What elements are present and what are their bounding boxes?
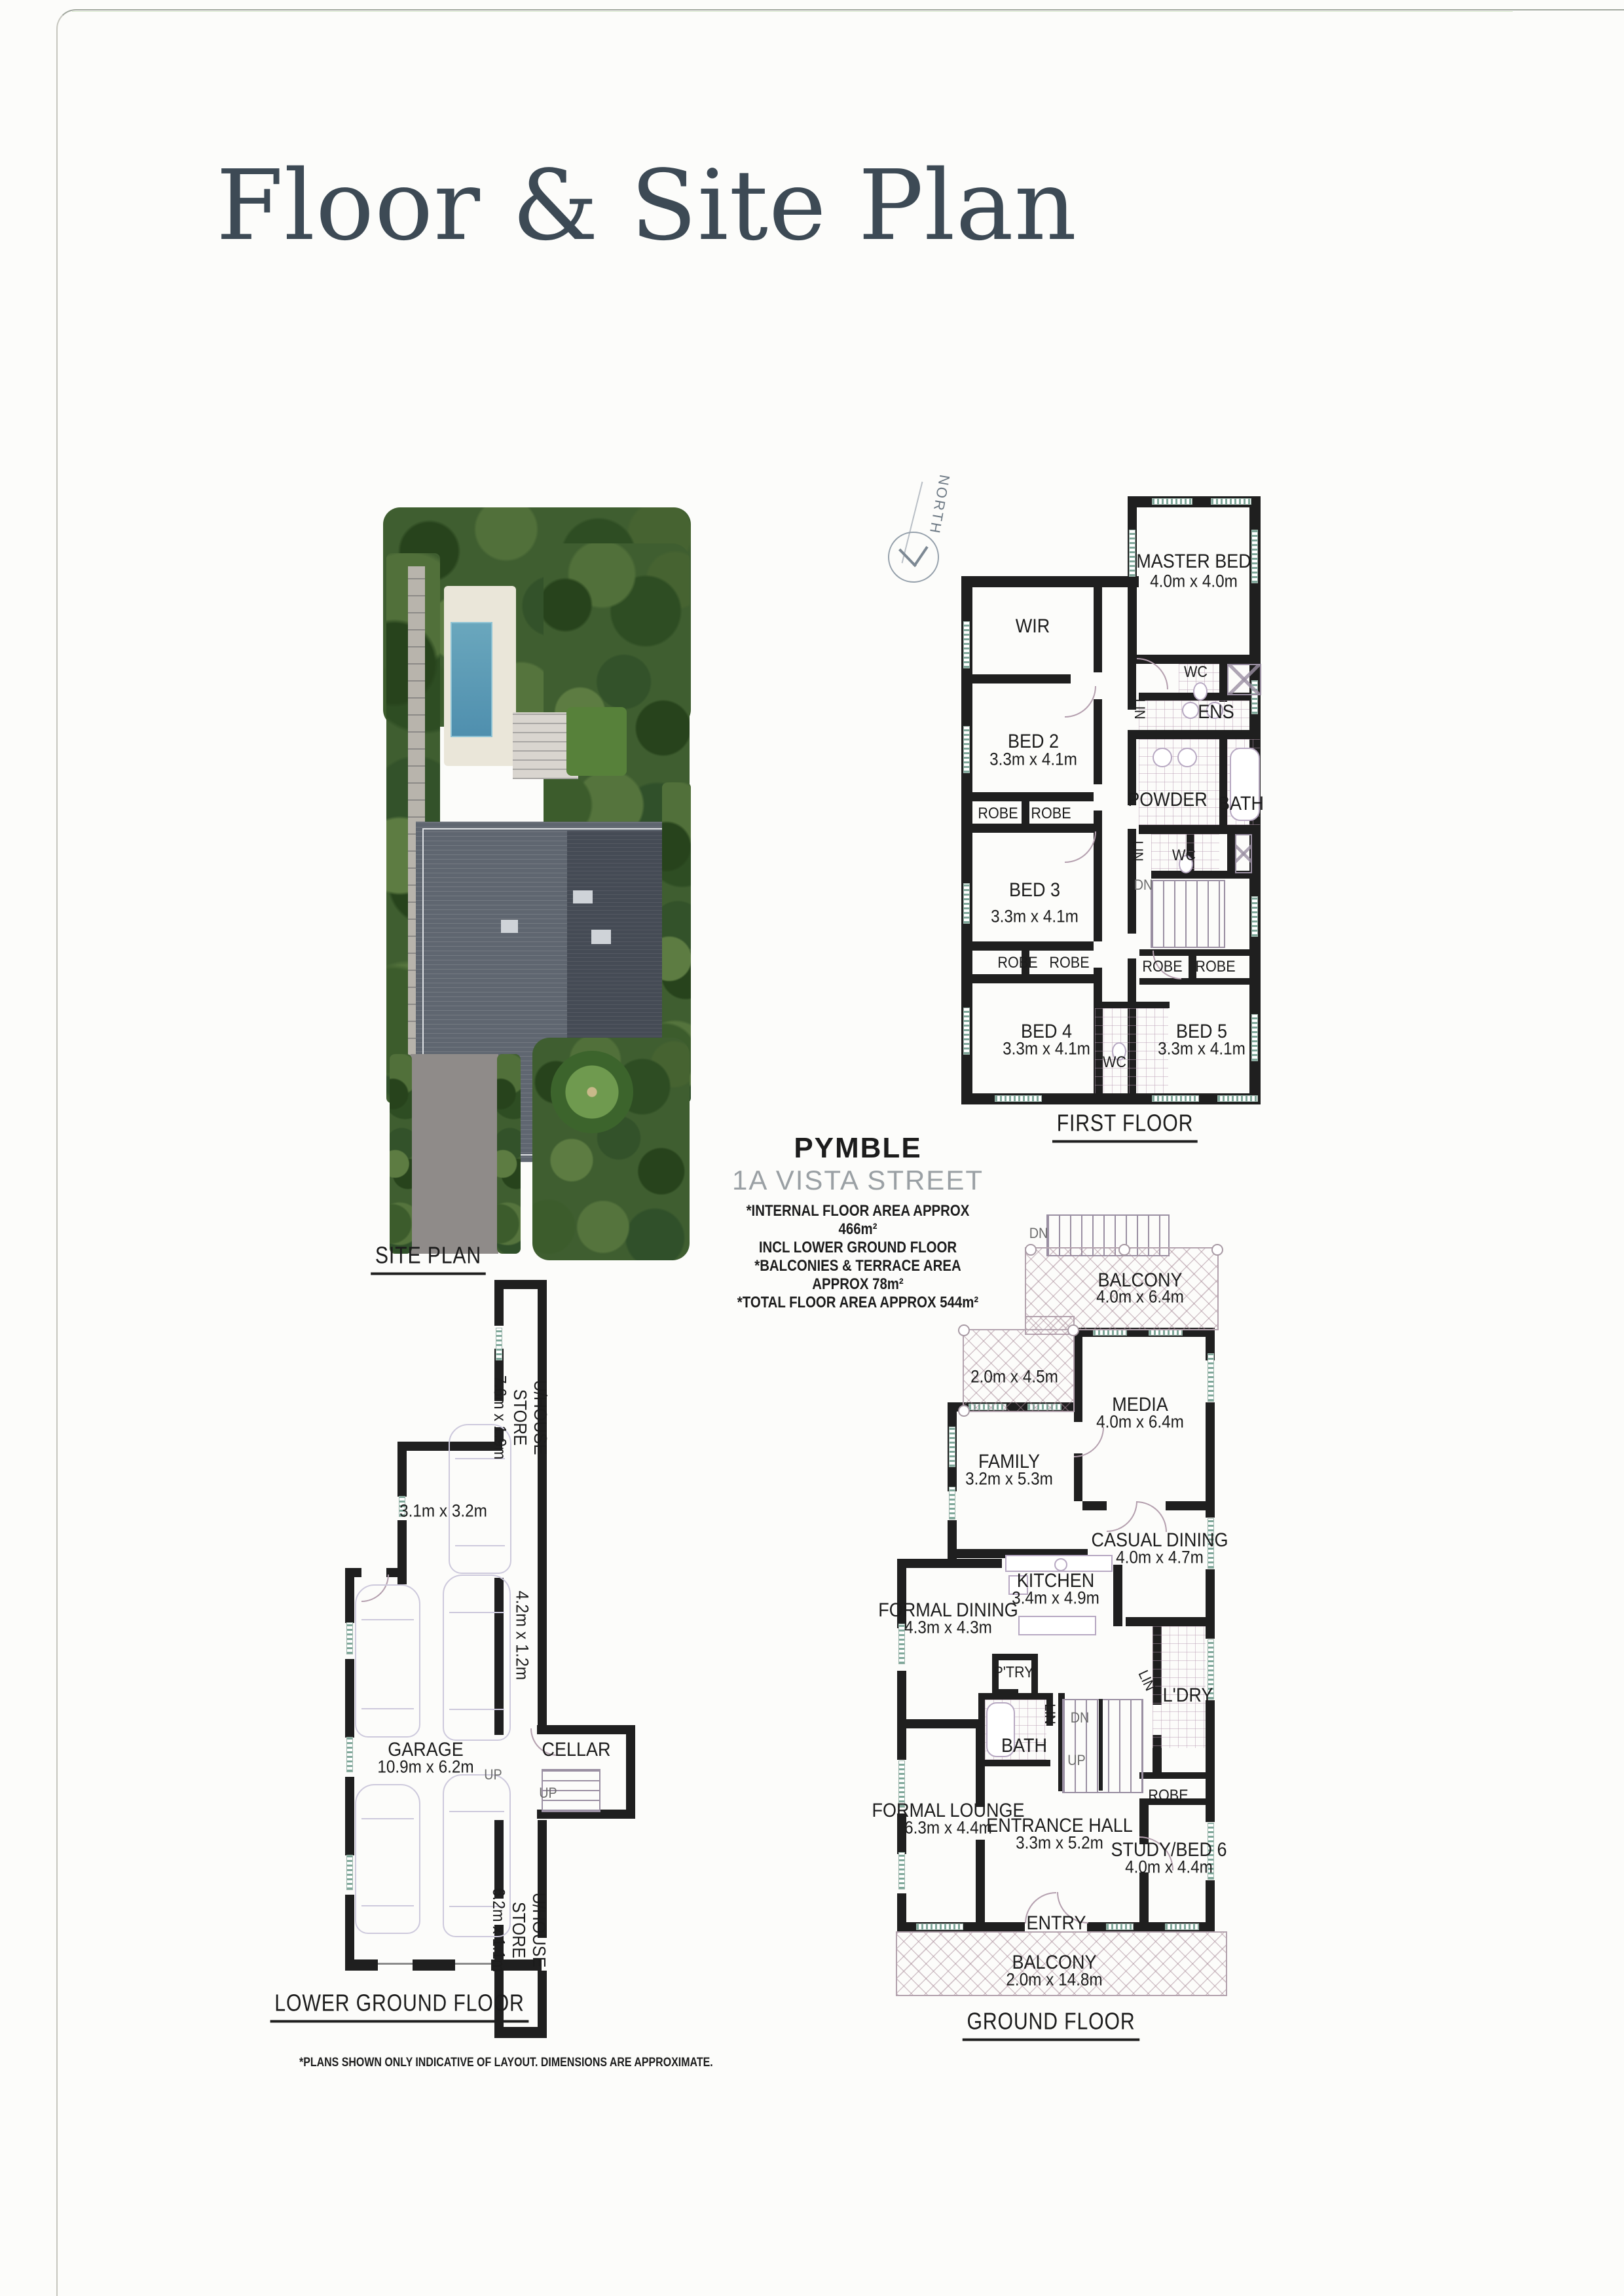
label-cellar: CELLAR bbox=[542, 1739, 610, 1761]
label-robe: ROBE bbox=[1031, 805, 1071, 823]
window bbox=[917, 1924, 963, 1929]
door-arc bbox=[1065, 831, 1096, 863]
area-note: INCL LOWER GROUND FLOOR bbox=[730, 1239, 986, 1257]
label-dims: 4.0m x 6.4m bbox=[1096, 1412, 1184, 1432]
wall bbox=[948, 1520, 957, 1559]
wall bbox=[1094, 811, 1102, 941]
label-label: GROUND FLOOR bbox=[963, 2008, 1139, 2041]
wall bbox=[1074, 1337, 1082, 1422]
label-wir: WIR bbox=[1016, 615, 1050, 638]
window bbox=[899, 1853, 904, 1889]
label-robe: ROBE bbox=[1148, 1787, 1188, 1805]
label-dims: 10.9m x 6.2m bbox=[377, 1757, 473, 1777]
site-plan-aerial bbox=[377, 504, 697, 1264]
label-name: MASTER BED bbox=[1136, 551, 1251, 573]
window bbox=[899, 1624, 904, 1664]
wall bbox=[626, 1725, 635, 1819]
label-wc: WC bbox=[1184, 663, 1208, 682]
store-dims: 7.6m x 1.9m bbox=[490, 1351, 509, 1484]
wall bbox=[538, 1627, 547, 1725]
label-robe: ROBE bbox=[1049, 954, 1089, 972]
shower bbox=[1227, 664, 1261, 695]
skylight bbox=[591, 930, 611, 944]
window bbox=[950, 1427, 955, 1467]
window bbox=[995, 1096, 1041, 1101]
north-arrow: NORTH bbox=[877, 477, 969, 594]
wall bbox=[345, 1959, 378, 1971]
window bbox=[964, 622, 969, 668]
wall bbox=[897, 1719, 985, 1728]
hedge bbox=[497, 1054, 521, 1254]
staircase bbox=[1151, 880, 1225, 948]
label-store_room_dims: 3.1m x 3.2m bbox=[399, 1501, 487, 1522]
label-terrace_dims: 2.0m x 4.5m bbox=[970, 1367, 1058, 1387]
wall bbox=[972, 941, 1094, 951]
garage-door-line bbox=[455, 1963, 491, 1965]
wall bbox=[1206, 1569, 1215, 1639]
window bbox=[1252, 897, 1257, 936]
label-name: BED 3 bbox=[1009, 879, 1060, 902]
label-wc: WC bbox=[1172, 847, 1196, 865]
basin bbox=[1182, 702, 1199, 719]
window bbox=[964, 727, 969, 773]
wall bbox=[386, 1568, 407, 1577]
label-up: UP bbox=[539, 1785, 557, 1802]
area-note: *TOTAL FLOOR AREA APPROX 544m² bbox=[730, 1294, 986, 1312]
balcony-post bbox=[1025, 1244, 1037, 1256]
window bbox=[347, 1738, 352, 1772]
wall bbox=[1166, 1501, 1215, 1510]
label-robe: ROBE bbox=[1142, 958, 1182, 976]
balcony-post bbox=[1067, 1324, 1079, 1336]
label-lin: LIN bbox=[1131, 699, 1148, 720]
door-arc bbox=[1107, 1501, 1137, 1532]
wall bbox=[978, 1693, 1050, 1700]
label-up: UP bbox=[1067, 1752, 1086, 1769]
window bbox=[347, 1855, 352, 1889]
window bbox=[1166, 1924, 1198, 1929]
window bbox=[964, 884, 969, 923]
wall bbox=[1094, 699, 1102, 784]
wall bbox=[494, 2027, 547, 2038]
window bbox=[1094, 1330, 1126, 1335]
wall bbox=[897, 1559, 1002, 1568]
balcony-post bbox=[1211, 1244, 1223, 1256]
swimming-pool bbox=[452, 623, 491, 736]
wall bbox=[1139, 825, 1261, 834]
suburb: PYMBLE bbox=[707, 1133, 1008, 1164]
label-dims: 3.3m x 4.1m bbox=[989, 750, 1077, 770]
wall bbox=[345, 1568, 354, 1623]
sink bbox=[1054, 1558, 1067, 1571]
label-lin: LIN bbox=[1129, 841, 1146, 862]
car-outline bbox=[443, 1575, 511, 1741]
label-dn: DN bbox=[1029, 1225, 1048, 1242]
kitchen-island bbox=[1018, 1616, 1096, 1635]
site-plan-label: SITE PLAN bbox=[371, 1242, 486, 1275]
wall bbox=[345, 1659, 354, 1738]
label-up: UP bbox=[484, 1766, 502, 1783]
label-dims: 4.0m x 4.4m bbox=[1125, 1857, 1213, 1878]
label-powder: POWDER bbox=[1128, 789, 1208, 811]
first-floor-plan: MASTER BED4.0m x 4.0mWIRBED 23.3m x 4.1m… bbox=[956, 491, 1283, 1152]
window bbox=[347, 1623, 352, 1654]
skylight bbox=[573, 890, 593, 903]
wall bbox=[1128, 730, 1261, 739]
lower-ground-floor-plan: 3.1m x 3.2mGARAGE10.9m x 6.2m4.2m x 1.2m… bbox=[314, 1277, 668, 2085]
ground-floor-plan: DNBALCONY4.0m x 6.4m2.0m x 4.5mMEDIA4.0m… bbox=[891, 1211, 1231, 2046]
label-dims: 3.3m x 5.2m bbox=[1016, 1833, 1103, 1853]
store-name: U/HOUSE STORE bbox=[509, 1351, 551, 1484]
property-info-block: PYMBLE 1A VISTA STREET *INTERNAL FLOOR A… bbox=[707, 1133, 1008, 1312]
garage-door-line bbox=[378, 1963, 413, 1965]
scanned-floor-plan-page: Floor & Site Plan SITE PLAN NORTH bbox=[0, 0, 1624, 2296]
page-title: Floor & Site Plan bbox=[216, 149, 1077, 262]
balcony-post bbox=[1118, 1244, 1130, 1256]
label-dims: 4.3m x 4.3m bbox=[904, 1618, 992, 1638]
wall bbox=[961, 576, 1139, 587]
label-dims: 4.0m x 4.0m bbox=[1150, 572, 1238, 592]
wall bbox=[1139, 1772, 1215, 1779]
label-wc: WC bbox=[1103, 1053, 1126, 1072]
wall bbox=[1206, 1402, 1215, 1518]
label-robe: ROBE bbox=[1195, 958, 1235, 976]
shower bbox=[1235, 834, 1252, 873]
window bbox=[1130, 530, 1135, 576]
round-garden-bed bbox=[551, 1051, 633, 1133]
wall bbox=[976, 1840, 985, 1922]
label-dims: 3.2m x 5.3m bbox=[965, 1469, 1053, 1489]
wall bbox=[1113, 1565, 1122, 1626]
wall bbox=[1082, 1501, 1107, 1510]
wall bbox=[494, 1280, 504, 1326]
store-dims: 6.2m x 1.1m bbox=[489, 1863, 508, 1997]
label-dims: 2.0m x 14.8m bbox=[1006, 1970, 1102, 1990]
area-note: *BALCONIES & TERRACE AREA APPROX 78m² bbox=[730, 1257, 986, 1294]
label-strip_dims: 4.2m x 1.2m bbox=[512, 1591, 532, 1681]
door-arc bbox=[1136, 1501, 1167, 1532]
label-lin: LIN bbox=[1041, 1704, 1058, 1724]
label-dims: 3.3m x 4.1m bbox=[1158, 1039, 1246, 1059]
window bbox=[1107, 1924, 1133, 1929]
label-ens: ENS bbox=[1198, 701, 1234, 723]
north-label: NORTH bbox=[926, 473, 953, 536]
label-dn: DN bbox=[1134, 877, 1153, 894]
wall bbox=[897, 1893, 906, 1922]
label-dn: DN bbox=[1071, 1709, 1090, 1726]
door-arc bbox=[1065, 686, 1096, 718]
label-store-vertical: U/HOUSE STORE6.2m x 1.1m bbox=[489, 1856, 549, 2005]
car-outline bbox=[355, 1784, 420, 1934]
toilet bbox=[1193, 682, 1208, 701]
window bbox=[1153, 1096, 1198, 1101]
window bbox=[1153, 499, 1192, 504]
label-robe: ROBE bbox=[997, 954, 1037, 972]
window bbox=[1252, 1015, 1257, 1061]
label-dims: 4.0m x 6.4m bbox=[1096, 1287, 1184, 1307]
label-label: FIRST FLOOR bbox=[1052, 1110, 1198, 1143]
wall bbox=[978, 1760, 1050, 1766]
wall bbox=[1206, 1880, 1215, 1931]
scan-edge-tint bbox=[72, 11, 1513, 12]
label-store-vertical: U/HOUSE STORE7.6m x 1.9m bbox=[490, 1344, 551, 1491]
window bbox=[1211, 499, 1251, 504]
wall bbox=[1074, 1453, 1082, 1501]
wall bbox=[1128, 507, 1137, 655]
window bbox=[964, 1008, 969, 1054]
label-pantry: P'TRY bbox=[993, 1664, 1033, 1682]
wall bbox=[345, 1777, 354, 1855]
label-robe: ROBE bbox=[978, 805, 1018, 823]
north-arrow-circle bbox=[888, 532, 939, 583]
label-bath: BATH bbox=[1001, 1735, 1047, 1757]
lawn bbox=[566, 707, 627, 776]
window bbox=[1252, 530, 1257, 583]
window bbox=[950, 1487, 955, 1519]
car-outline bbox=[355, 1584, 420, 1738]
label-bath: BATH bbox=[1218, 793, 1264, 815]
window bbox=[1149, 1330, 1182, 1335]
balcony-post bbox=[958, 1324, 970, 1336]
label-dims: 3.3m x 4.1m bbox=[991, 907, 1079, 927]
label-dims: 6.3m x 4.4m bbox=[904, 1818, 992, 1838]
balcony-post bbox=[958, 1405, 970, 1417]
label-dims: 4.0m x 4.7m bbox=[1116, 1548, 1204, 1568]
window bbox=[1208, 1354, 1213, 1401]
wall bbox=[976, 1728, 985, 1807]
wall bbox=[1139, 1872, 1149, 1922]
wall bbox=[897, 1671, 906, 1760]
wall bbox=[972, 792, 1094, 801]
wall bbox=[1126, 1617, 1215, 1626]
label-dims: 3.3m x 4.1m bbox=[1003, 1039, 1090, 1059]
disclaimer: *PLANS SHOWN ONLY INDICATIVE OF LAYOUT. … bbox=[299, 2056, 713, 2070]
wall bbox=[1094, 1002, 1170, 1008]
area-note: *INTERNAL FLOOR AREA APPROX 466m² bbox=[730, 1202, 986, 1239]
wall bbox=[413, 1959, 455, 1971]
hedge bbox=[390, 1054, 412, 1254]
label-dims: 3.4m x 4.9m bbox=[1012, 1588, 1099, 1609]
window bbox=[1218, 1096, 1257, 1101]
driveway bbox=[411, 1054, 498, 1254]
wall bbox=[1227, 834, 1235, 871]
street-address: 1A VISTA STREET bbox=[707, 1165, 1008, 1195]
wall bbox=[972, 674, 1071, 683]
store-name: U/HOUSE STORE bbox=[508, 1863, 549, 1997]
label-entry: ENTRY bbox=[1026, 1912, 1086, 1935]
basin bbox=[1177, 748, 1197, 767]
label-laundry: L'DRY bbox=[1163, 1685, 1213, 1707]
wall bbox=[397, 1442, 407, 1497]
basin bbox=[1153, 748, 1172, 767]
skylight bbox=[501, 920, 518, 933]
stair-rail bbox=[1099, 1699, 1103, 1791]
wall bbox=[972, 974, 1094, 983]
wall bbox=[1094, 587, 1102, 672]
